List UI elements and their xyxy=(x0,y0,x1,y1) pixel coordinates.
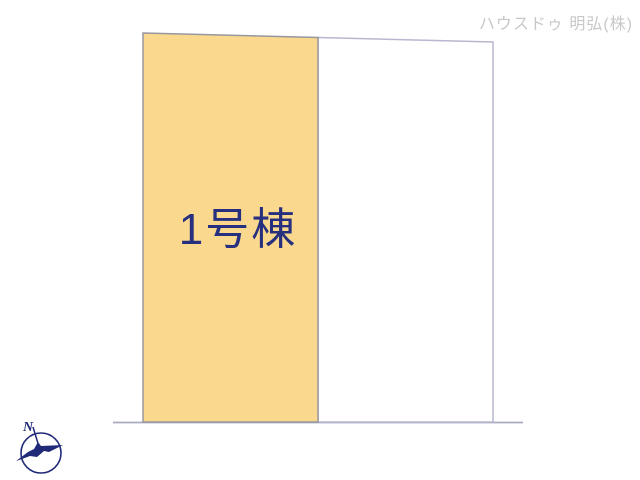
parcel-2-shape xyxy=(318,38,493,423)
building-1-label: 1号棟 xyxy=(179,205,297,254)
site-plan-canvas: ハウスドゥ 明弘(株) 1号棟 N xyxy=(0,0,640,480)
site-plan-svg: 1号棟 N xyxy=(0,0,640,480)
compass-north-label: N xyxy=(22,420,34,435)
compass-north-icon: N xyxy=(16,420,63,473)
